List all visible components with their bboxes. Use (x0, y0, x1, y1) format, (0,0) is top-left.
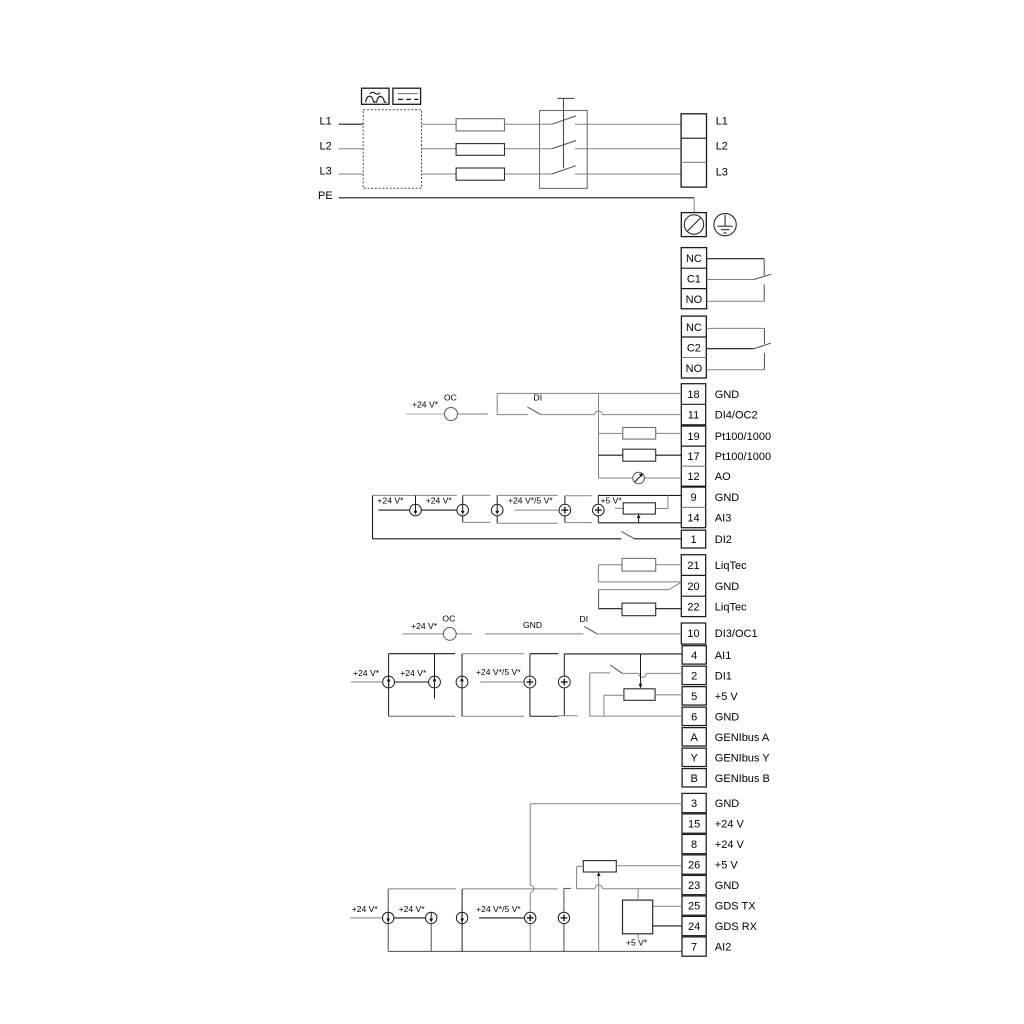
svg-text:+24 V*/5 V*: +24 V*/5 V* (508, 496, 553, 506)
svg-text:OC: OC (442, 613, 455, 623)
svg-text:NC: NC (686, 253, 702, 265)
svg-text:GDS TX: GDS TX (715, 901, 756, 913)
svg-text:5: 5 (691, 691, 697, 703)
svg-text:23: 23 (688, 880, 700, 892)
svg-text:10: 10 (687, 628, 699, 640)
svg-text:GND: GND (715, 581, 740, 593)
svg-text:4: 4 (691, 650, 697, 662)
svg-text:Pt100/1000: Pt100/1000 (715, 451, 771, 463)
svg-text:GND: GND (715, 492, 740, 504)
svg-text:GENIbus Y: GENIbus Y (715, 752, 770, 764)
svg-text:+24 V*: +24 V* (377, 496, 404, 506)
svg-text:GND: GND (715, 711, 740, 723)
svg-text:+24 V*: +24 V* (400, 668, 427, 678)
svg-text:L3: L3 (716, 166, 728, 178)
svg-text:8: 8 (691, 839, 697, 851)
svg-text:DI: DI (580, 614, 589, 624)
svg-text:PE: PE (318, 190, 333, 202)
svg-text:+24 V: +24 V (715, 819, 745, 831)
svg-text:15: 15 (688, 819, 700, 831)
svg-text:GND: GND (715, 389, 740, 401)
svg-text:+5 V: +5 V (715, 860, 739, 872)
svg-text:26: 26 (688, 860, 700, 872)
svg-text:LiqTec: LiqTec (715, 560, 747, 572)
svg-text:NO: NO (686, 363, 703, 375)
svg-text:+24 V*: +24 V* (399, 904, 426, 914)
svg-text:GND: GND (523, 620, 542, 630)
svg-text:6: 6 (691, 711, 697, 723)
svg-text:AI2: AI2 (715, 942, 732, 954)
svg-text:20: 20 (687, 581, 699, 593)
svg-text:LiqTec: LiqTec (715, 602, 747, 614)
svg-text:GDS RX: GDS RX (715, 921, 758, 933)
svg-text:L3: L3 (320, 166, 332, 178)
svg-text:C2: C2 (687, 343, 701, 355)
svg-text:+24 V*: +24 V* (411, 621, 438, 631)
svg-text:25: 25 (688, 901, 700, 913)
svg-text:2: 2 (691, 670, 697, 682)
svg-text:17: 17 (687, 451, 699, 463)
svg-text:1: 1 (690, 534, 696, 546)
svg-text:18: 18 (687, 389, 699, 401)
svg-text:+24 V*/5 V*: +24 V*/5 V* (476, 667, 521, 677)
svg-text:12: 12 (687, 471, 699, 483)
svg-text:22: 22 (687, 602, 699, 614)
svg-text:L2: L2 (320, 140, 332, 152)
svg-text:9: 9 (690, 492, 696, 504)
svg-text:AI1: AI1 (715, 650, 732, 662)
svg-text:DI4/OC2: DI4/OC2 (715, 409, 758, 421)
svg-text:NC: NC (686, 322, 702, 334)
svg-text:+24 V*: +24 V* (426, 496, 453, 506)
svg-text:A: A (691, 732, 699, 744)
svg-text:+5 V*: +5 V* (626, 938, 648, 948)
svg-text:11: 11 (688, 409, 699, 421)
svg-text:L1: L1 (320, 116, 332, 128)
svg-text:+24 V*/5 V*: +24 V*/5 V* (476, 904, 521, 914)
svg-text:GENIbus B: GENIbus B (715, 773, 770, 785)
svg-text:+24 V: +24 V (715, 839, 745, 851)
svg-text:C1: C1 (687, 274, 701, 286)
svg-text:AO: AO (715, 471, 731, 483)
svg-text:DI1: DI1 (715, 670, 732, 682)
svg-text:GND: GND (715, 798, 740, 810)
svg-text:+24 V*: +24 V* (353, 668, 380, 678)
svg-text:+24 V*: +24 V* (412, 399, 439, 409)
svg-text:DI3/OC1: DI3/OC1 (715, 628, 758, 640)
svg-text:21: 21 (687, 560, 699, 572)
svg-text:L1: L1 (716, 115, 728, 127)
svg-text:19: 19 (687, 431, 699, 443)
svg-text:AI3: AI3 (715, 512, 732, 524)
svg-text:+5 V*: +5 V* (601, 496, 623, 506)
svg-text:L2: L2 (716, 141, 728, 153)
svg-text:Y: Y (691, 752, 699, 764)
svg-text:+24 V*: +24 V* (352, 904, 379, 914)
svg-text:GND: GND (715, 880, 740, 892)
svg-text:OC: OC (444, 393, 457, 403)
svg-text:24: 24 (688, 921, 700, 933)
svg-text:14: 14 (687, 512, 699, 524)
svg-text:DI: DI (534, 392, 543, 402)
svg-text:DI2: DI2 (715, 534, 732, 546)
svg-text:GENIbus A: GENIbus A (715, 732, 770, 744)
svg-text:Pt100/1000: Pt100/1000 (715, 431, 771, 443)
svg-text:7: 7 (691, 942, 697, 954)
svg-text:+5 V: +5 V (715, 691, 739, 703)
svg-text:B: B (691, 773, 698, 785)
svg-text:NO: NO (686, 294, 703, 306)
svg-text:3: 3 (691, 798, 697, 810)
